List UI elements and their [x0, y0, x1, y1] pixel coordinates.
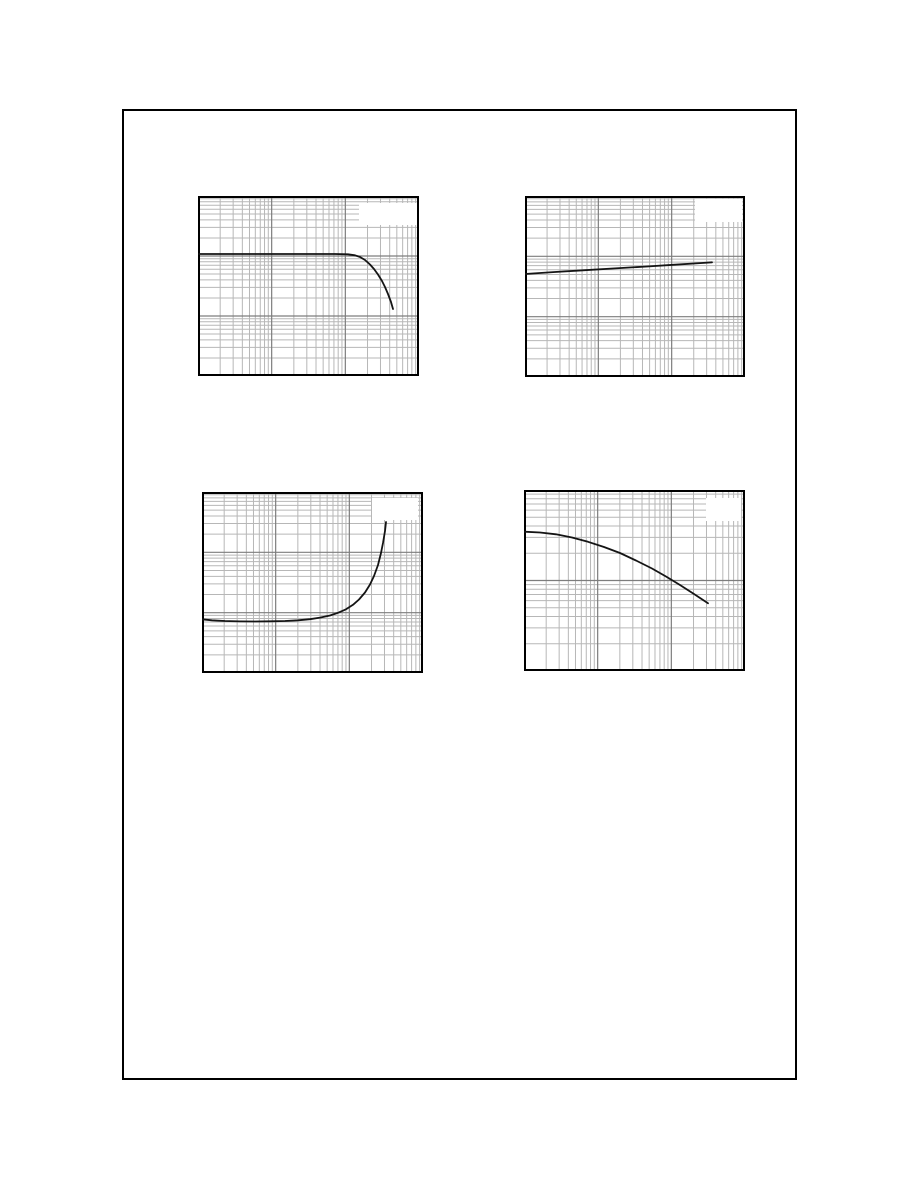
chart-2-plot [525, 196, 745, 377]
chart-3-plot [202, 492, 423, 673]
legend-box [359, 203, 417, 225]
chart-4-plot [524, 490, 745, 671]
chart-top-right [525, 196, 745, 377]
data-curve [524, 532, 708, 604]
legend-box [706, 498, 741, 521]
plot-frame [526, 197, 744, 376]
chart-1-plot [198, 196, 419, 376]
legend-box [372, 498, 418, 520]
chart-bottom-left [202, 492, 423, 673]
grid-major-lines [525, 196, 745, 377]
grid-minor-lines [525, 196, 745, 377]
legend-box [695, 199, 742, 222]
chart-top-left [198, 196, 419, 376]
data-curve [202, 522, 386, 622]
chart-bottom-right [524, 490, 745, 671]
data-curve [525, 262, 712, 274]
scanned-datasheet-page [0, 0, 918, 1188]
